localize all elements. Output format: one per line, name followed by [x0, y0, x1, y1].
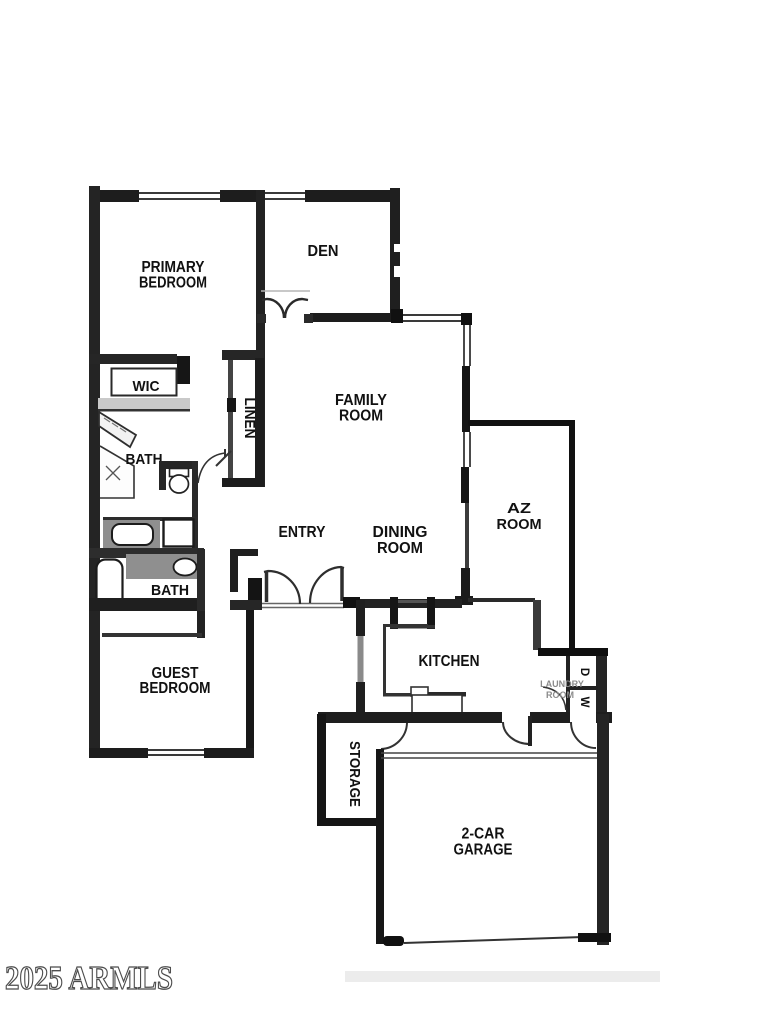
- svg-text:LINEN: LINEN: [241, 398, 258, 439]
- svg-text:BEDROOM: BEDROOM: [140, 680, 211, 697]
- svg-text:W: W: [578, 697, 590, 708]
- svg-text:2-CAR: 2-CAR: [462, 826, 505, 843]
- svg-text:FAMILY: FAMILY: [335, 392, 388, 409]
- svg-text:BEDROOM: BEDROOM: [139, 275, 207, 292]
- svg-text:2025 ARMLS: 2025 ARMLS: [5, 960, 173, 997]
- svg-text:WIC: WIC: [133, 378, 160, 395]
- svg-text:DEN: DEN: [308, 243, 339, 260]
- svg-text:ENTRY: ENTRY: [279, 524, 327, 541]
- svg-text:DINING: DINING: [373, 524, 428, 541]
- svg-text:KITCHEN: KITCHEN: [419, 653, 480, 670]
- svg-text:BATH: BATH: [126, 451, 163, 468]
- svg-text:AZ: AZ: [507, 501, 531, 517]
- svg-text:LAUNDRY: LAUNDRY: [540, 679, 584, 689]
- svg-text:ROOM: ROOM: [339, 408, 383, 425]
- svg-text:D: D: [578, 668, 590, 676]
- svg-text:STORAGE: STORAGE: [346, 741, 362, 807]
- svg-text:BATH: BATH: [151, 582, 189, 599]
- svg-text:ROOM: ROOM: [546, 690, 574, 700]
- svg-text:PRIMARY: PRIMARY: [142, 259, 206, 276]
- svg-text:GARAGE: GARAGE: [454, 842, 513, 859]
- svg-text:ROOM: ROOM: [497, 517, 542, 533]
- svg-text:ROOM: ROOM: [377, 540, 423, 557]
